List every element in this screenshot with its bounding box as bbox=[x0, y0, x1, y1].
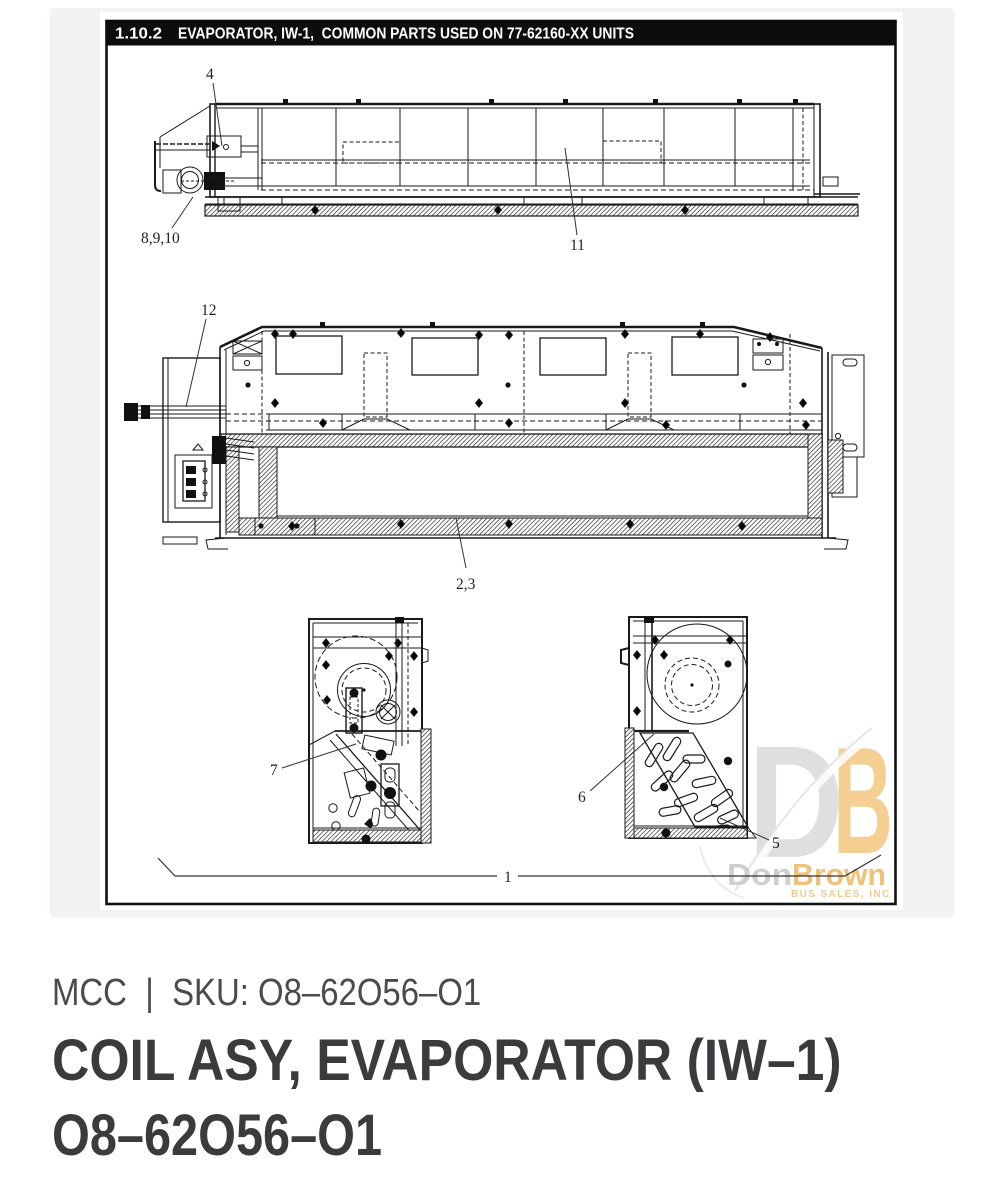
svg-text:EVAPORATOR, IW-1, COMMON PART: EVAPORATOR, IW-1, COMMON PARTS USED ON 7… bbox=[178, 26, 634, 43]
svg-text:Brown: Brown bbox=[792, 857, 886, 892]
svg-text:4: 4 bbox=[206, 66, 214, 83]
svg-text:11: 11 bbox=[570, 237, 585, 254]
svg-text:5: 5 bbox=[772, 835, 780, 852]
svg-text:BUS SALES, INC: BUS SALES, INC bbox=[791, 889, 891, 900]
svg-text:7: 7 bbox=[270, 762, 278, 779]
svg-text:1: 1 bbox=[504, 869, 512, 886]
svg-text:6: 6 bbox=[578, 789, 586, 806]
svg-text:12: 12 bbox=[201, 302, 217, 319]
svg-text:1.10.2: 1.10.2 bbox=[115, 26, 162, 43]
svg-text:2,3: 2,3 bbox=[456, 576, 476, 593]
svg-text:Don: Don bbox=[727, 857, 792, 892]
svg-text:8,9,10: 8,9,10 bbox=[141, 230, 180, 247]
